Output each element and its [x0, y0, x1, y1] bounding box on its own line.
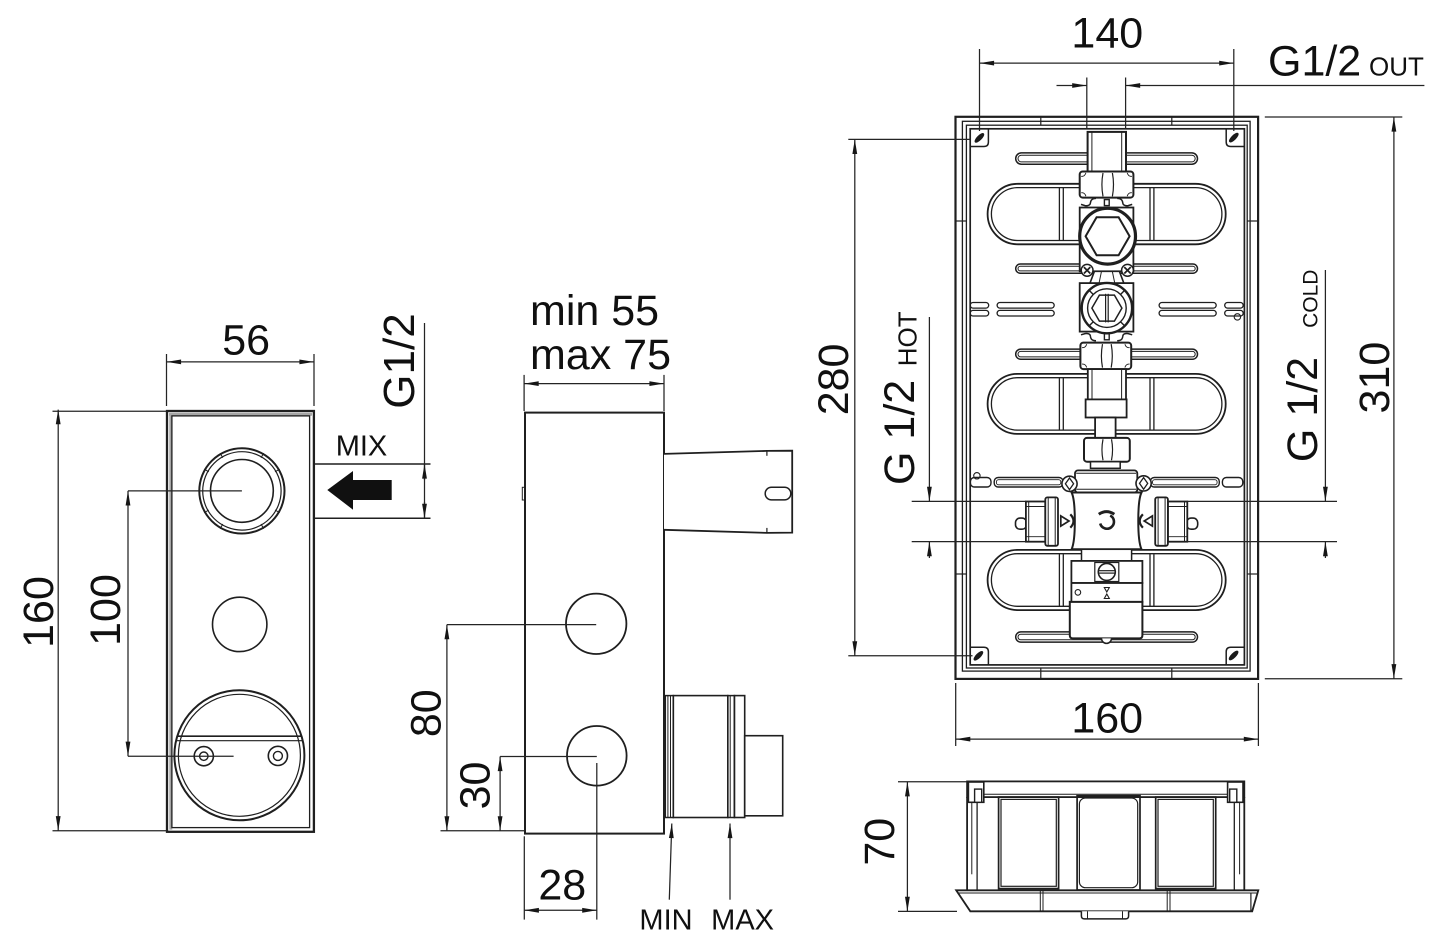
svg-text:160: 160 — [15, 576, 63, 648]
svg-text:280: 280 — [810, 344, 858, 416]
svg-text:G1/2: G1/2 — [375, 313, 424, 408]
svg-text:100: 100 — [82, 574, 130, 646]
svg-text:310: 310 — [1351, 342, 1399, 414]
svg-text:HOT: HOT — [893, 311, 923, 366]
svg-text:MAX: MAX — [711, 905, 774, 937]
svg-text:80: 80 — [403, 689, 451, 737]
svg-text:56: 56 — [222, 317, 270, 365]
svg-text:OUT: OUT — [1369, 51, 1424, 81]
svg-text:COLD: COLD — [1300, 270, 1323, 328]
svg-text:G1/2: G1/2 — [1268, 37, 1361, 85]
svg-text:MIX: MIX — [336, 431, 388, 463]
svg-text:MIN: MIN — [639, 905, 692, 937]
svg-text:G 1/2: G 1/2 — [876, 380, 924, 485]
svg-text:G 1/2: G 1/2 — [1279, 357, 1327, 462]
svg-text:30: 30 — [452, 762, 500, 810]
svg-text:70: 70 — [856, 818, 904, 866]
svg-text:min 55: min 55 — [530, 287, 659, 335]
svg-text:140: 140 — [1071, 10, 1143, 58]
svg-text:28: 28 — [538, 862, 586, 910]
svg-text:max 75: max 75 — [530, 331, 671, 379]
svg-text:160: 160 — [1071, 695, 1143, 743]
